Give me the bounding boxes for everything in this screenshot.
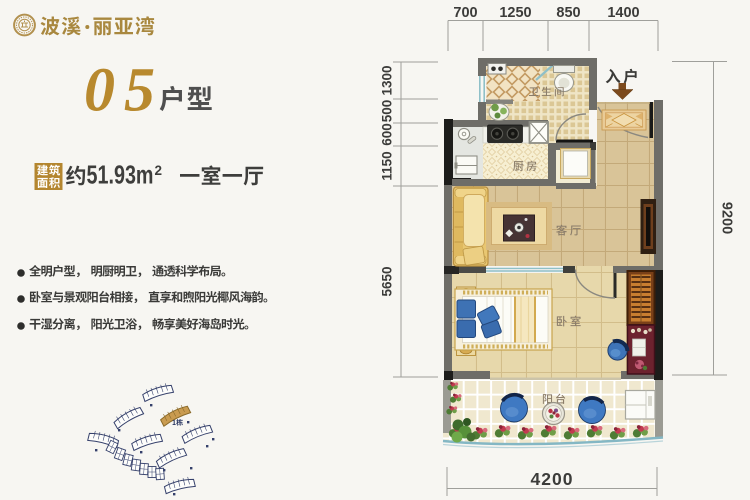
svg-text:51.93m: 51.93m <box>87 160 154 190</box>
svg-text:1400: 1400 <box>607 5 639 21</box>
svg-text:600: 600 <box>380 123 395 146</box>
svg-text:2: 2 <box>155 163 163 178</box>
svg-text:700: 700 <box>453 5 477 21</box>
svg-text:4200: 4200 <box>531 469 574 489</box>
svg-text:9200: 9200 <box>719 202 735 234</box>
svg-text:850: 850 <box>556 5 580 21</box>
svg-text:1150: 1150 <box>380 151 395 180</box>
svg-text:1300: 1300 <box>380 65 395 95</box>
svg-text:05: 05 <box>84 57 164 125</box>
svg-text:5650: 5650 <box>380 266 395 296</box>
svg-text:500: 500 <box>380 100 395 123</box>
svg-text:1250: 1250 <box>499 5 531 21</box>
